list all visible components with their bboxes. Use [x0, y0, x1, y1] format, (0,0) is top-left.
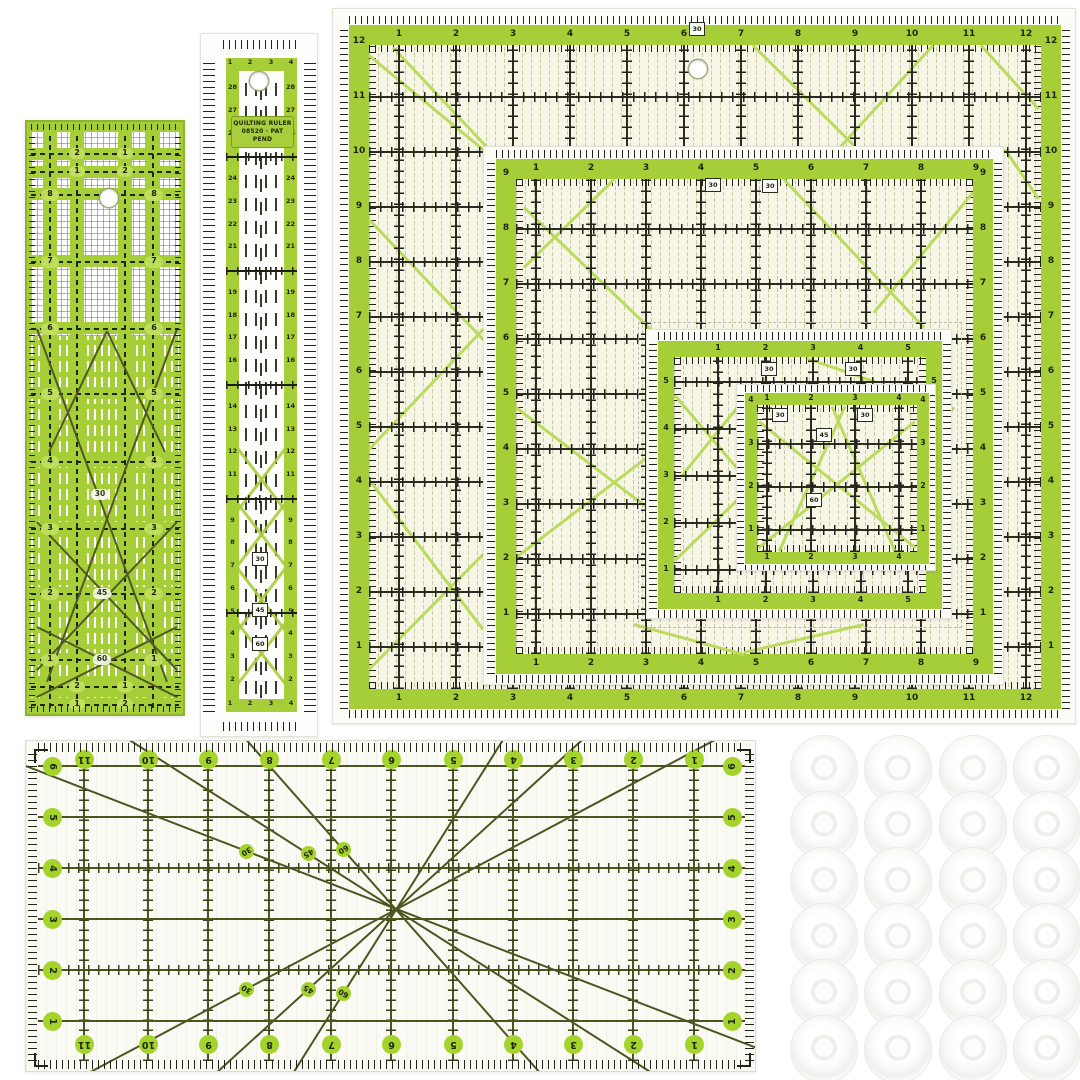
number-badge: 2: [43, 961, 62, 980]
angle-label: 30: [236, 979, 256, 999]
inch-line-ticks: [586, 179, 596, 654]
number-badge: 3: [43, 910, 62, 929]
ruler-frame: [226, 699, 297, 712]
inch-line-ticks: [628, 753, 638, 1061]
bobbin-hub: [960, 755, 986, 781]
angle-label: 30: [689, 22, 705, 36]
number-badge: [145, 654, 163, 666]
number-badge: [69, 681, 85, 692]
tick-line: [226, 495, 297, 503]
number-badge: 1: [723, 1012, 742, 1031]
edge-ticks: [31, 124, 179, 130]
inner-ticks: [516, 179, 973, 186]
number-badge: 7: [322, 750, 341, 769]
angle-label: [93, 654, 111, 665]
number-badge: [145, 588, 163, 600]
corner-mark: [737, 1053, 751, 1067]
bobbin-hub: [811, 1035, 837, 1061]
angle-label: 45: [298, 843, 318, 863]
tick-line: [31, 171, 179, 173]
bobbin-hub: [885, 811, 911, 837]
inch-line-ticks: [757, 525, 917, 535]
bobbin-hub: [960, 979, 986, 1005]
rect-ruler-6x12: 1111101099887766554433221166554433221130…: [25, 740, 756, 1072]
angle-label: 45: [252, 603, 268, 617]
bobbin-hub: [960, 923, 986, 949]
edge-ticks: [175, 132, 181, 708]
inch-line-ticks: [757, 482, 917, 492]
edge-ticks: [745, 384, 929, 392]
inch-line: [38, 918, 745, 920]
number-badge: 4: [43, 859, 62, 878]
number-badge: 2: [624, 750, 643, 769]
bobbin-hub: [1034, 755, 1060, 781]
angle-label: 60: [252, 637, 268, 651]
inch-line-ticks: [516, 279, 973, 289]
number-badge: 6: [382, 750, 401, 769]
inch-line-ticks: [143, 753, 153, 1061]
inch-line-ticks: [689, 753, 699, 1061]
green-grid-ruler: 304560887766554433221121122112: [25, 120, 185, 716]
number-badge: [69, 166, 85, 177]
inner-ticks: [516, 179, 523, 654]
hanging-hole: [100, 189, 118, 207]
bobbin-hub: [885, 867, 911, 893]
angle-label: [91, 489, 109, 500]
number-badge: [41, 654, 59, 666]
corner-mark: [34, 749, 48, 763]
bobbin-hub: [811, 923, 837, 949]
number-badge: 1: [685, 1035, 704, 1054]
edge-ticks: [29, 132, 35, 708]
angle-label: [93, 588, 111, 599]
corner-mark: [34, 1053, 48, 1067]
edge-ticks: [745, 565, 929, 571]
edge-ticks: [38, 1060, 745, 1069]
angle-label: 30: [761, 362, 777, 376]
number-badge: [41, 588, 59, 600]
number-badge: [145, 388, 163, 400]
bobbin: [791, 1016, 857, 1080]
edge-ticks: [349, 710, 1061, 718]
quilting-ruler-product-photo: 304560887766554433221121122112 QUILTING …: [0, 0, 1080, 1080]
edge-ticks: [28, 753, 37, 1061]
number-badge: 11: [75, 1035, 94, 1054]
bobbin-hub: [885, 979, 911, 1005]
number-badge: [145, 256, 163, 268]
hanging-hole: [250, 72, 268, 90]
inch-line-ticks: [264, 753, 274, 1061]
edge-ticks: [223, 722, 299, 731]
number-badge: 10: [139, 1035, 158, 1054]
edge-ticks: [304, 60, 316, 712]
number-badge: 8: [260, 750, 279, 769]
inner-ticks: [966, 179, 973, 654]
number-badge: [41, 256, 59, 268]
bobbin-hub: [811, 979, 837, 1005]
inch-line: [38, 816, 745, 818]
inch-line-ticks: [38, 965, 745, 975]
edge-ticks: [349, 16, 1061, 24]
number-badge: [117, 681, 133, 692]
tick-line: [31, 153, 179, 155]
bobbin: [1014, 1016, 1080, 1080]
number-badge: 9: [199, 750, 218, 769]
ruler-label-plate: QUILTING RULER 08520 · PAT PEND: [231, 116, 294, 148]
square-ruler-4-inch: 112233444433221130304560: [736, 384, 936, 571]
edge-ticks: [487, 159, 495, 674]
angle-label: 30: [772, 408, 788, 422]
number-badge: 8: [260, 1035, 279, 1054]
inner-ticks: [674, 586, 926, 593]
number-badge: [145, 523, 163, 535]
edge-ticks: [340, 25, 348, 709]
number-badge: 2: [723, 961, 742, 980]
bobbin-hub: [811, 811, 837, 837]
bobbin-hub: [885, 923, 911, 949]
number-badge: 3: [564, 750, 583, 769]
bobbin-hub: [1034, 1035, 1060, 1061]
number-badge: [41, 388, 59, 400]
edge-ticks: [38, 743, 745, 752]
tick-line: [226, 267, 297, 275]
number-badge: [145, 456, 163, 468]
number-badge: [145, 323, 163, 335]
bobbin-hub: [1034, 923, 1060, 949]
number-badge: 1: [43, 1012, 62, 1031]
number-badge: 5: [43, 808, 62, 827]
number-badge: [41, 323, 59, 335]
number-badge: 3: [564, 1035, 583, 1054]
number-badge: 3: [723, 910, 742, 929]
angle-label: 30: [762, 179, 778, 193]
edge-ticks: [203, 60, 215, 712]
edge-ticks: [31, 706, 179, 712]
tick-line: [49, 132, 51, 708]
number-badge: 4: [504, 750, 523, 769]
bobbin-hub: [1034, 979, 1060, 1005]
ruler-brand-text: QUILTING RULER: [233, 120, 291, 128]
bobbin: [940, 1016, 1006, 1080]
tick-line: [124, 132, 126, 708]
number-badge: 10: [139, 750, 158, 769]
edge-ticks: [223, 40, 299, 49]
number-badge: 4: [723, 859, 742, 878]
ruler-model-text: 08520 · PAT PEND: [232, 128, 293, 144]
edge-ticks: [994, 159, 1002, 674]
ruler-frame: [226, 58, 297, 71]
edge-ticks: [736, 393, 744, 564]
hanging-hole: [689, 60, 707, 78]
inch-line-ticks: [516, 224, 973, 234]
number-badge: 11: [75, 750, 94, 769]
inch-line: [38, 1020, 745, 1022]
bobbin-hub: [960, 1035, 986, 1061]
number-badge: [41, 456, 59, 468]
angle-label: 45: [816, 428, 832, 442]
bobbin-hub: [1034, 811, 1060, 837]
bobbin-hub: [960, 867, 986, 893]
edge-ticks: [649, 341, 657, 609]
number-badge: [41, 523, 59, 535]
angle-label: 30: [252, 552, 268, 566]
edge-ticks: [745, 753, 754, 1061]
inch-line-ticks: [369, 92, 1041, 102]
number-badge: [145, 189, 163, 201]
edge-ticks: [943, 341, 951, 609]
number-badge: 4: [504, 1035, 523, 1054]
inch-line-ticks: [203, 753, 213, 1061]
bobbin-grid: [788, 733, 1080, 1075]
corner-mark: [737, 749, 751, 763]
inch-line-ticks: [757, 439, 917, 449]
number-badge: 5: [444, 750, 463, 769]
bobbin-hub: [811, 755, 837, 781]
bobbin-hub: [885, 1035, 911, 1061]
bobbin-hub: [960, 811, 986, 837]
number-badge: 6: [382, 1035, 401, 1054]
number-badge: [117, 148, 133, 159]
edge-ticks: [496, 675, 993, 683]
angle-label: 60: [806, 493, 822, 507]
bobbin-hub: [885, 755, 911, 781]
number-badge: 2: [624, 1035, 643, 1054]
number-badge: [41, 189, 59, 201]
bobbin-hub: [811, 867, 837, 893]
edge-ticks: [496, 150, 993, 158]
tick-line: [152, 132, 154, 708]
number-badge: 1: [685, 750, 704, 769]
inch-line-ticks: [531, 179, 541, 654]
number-badge: [117, 166, 133, 177]
tick-line: [226, 153, 297, 161]
inch-line-ticks: [79, 753, 89, 1061]
inch-line-ticks: [38, 863, 745, 873]
bobbin: [865, 1016, 931, 1080]
angle-label: 30: [845, 362, 861, 376]
edge-ticks: [658, 610, 942, 618]
number-badge: [69, 148, 85, 159]
tick-line: [226, 381, 297, 389]
edge-ticks: [658, 332, 942, 340]
angle-label: 30: [857, 408, 873, 422]
number-badge: 7: [322, 1035, 341, 1054]
inner-ticks: [369, 45, 1041, 52]
angle-label: 30: [236, 841, 256, 861]
inner-ticks: [674, 357, 926, 364]
tick-line: [76, 132, 78, 708]
number-badge: 5: [723, 808, 742, 827]
inch-line-ticks: [568, 753, 578, 1061]
number-badge: 9: [199, 1035, 218, 1054]
edge-ticks: [930, 393, 936, 564]
edge-ticks: [1062, 25, 1070, 709]
narrow-quilting-ruler: QUILTING RULER 08520 · PAT PEND 12341234…: [200, 33, 318, 737]
bobbin-hub: [1034, 867, 1060, 893]
inch-line-ticks: [448, 753, 458, 1061]
number-badge: 5: [444, 1035, 463, 1054]
angle-label: 30: [705, 178, 721, 192]
